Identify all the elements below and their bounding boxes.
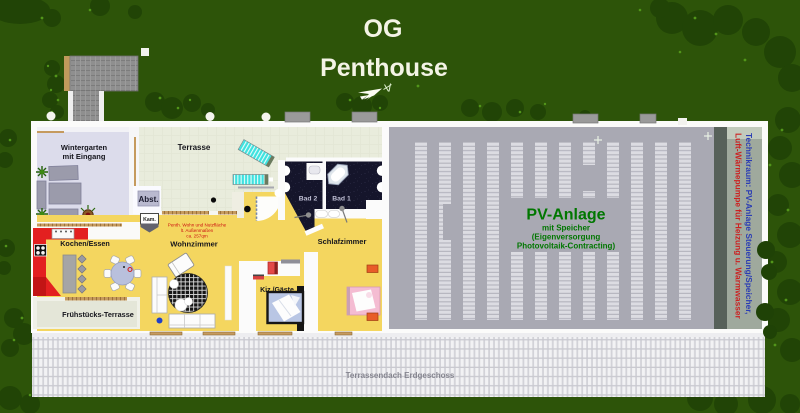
- svg-text:Schlafzimmer: Schlafzimmer: [318, 237, 367, 246]
- svg-text:Frühstücks-Terrasse: Frühstücks-Terrasse: [62, 310, 134, 319]
- svg-text:lt. Außenmaßen: lt. Außenmaßen: [181, 228, 214, 233]
- svg-text:Wintergarten: Wintergarten: [61, 143, 108, 152]
- svg-text:Kam.: Kam.: [143, 217, 156, 223]
- svg-text:(Eigenversorgung: (Eigenversorgung: [532, 233, 601, 242]
- svg-text:Penthouse: Penthouse: [320, 54, 448, 82]
- svg-text:PV-Anlage: PV-Anlage: [526, 207, 605, 224]
- svg-text:OG: OG: [364, 15, 403, 43]
- svg-text:Terrassendach Erdgeschoss: Terrassendach Erdgeschoss: [346, 371, 455, 380]
- svg-text:Photovoltaik-Contracting): Photovoltaik-Contracting): [517, 242, 616, 251]
- svg-text:Bad 1: Bad 1: [332, 196, 351, 203]
- svg-text:Terrasse: Terrasse: [178, 143, 211, 152]
- svg-text:Luft-Wärmepumpe für Heizung u.: Luft-Wärmepumpe für Heizung u. Warmwasse…: [734, 133, 744, 320]
- svg-text:Penth. Wohn und Nutzfläche: Penth. Wohn und Nutzfläche: [168, 223, 227, 228]
- svg-text:mit Speicher: mit Speicher: [542, 224, 590, 233]
- svg-text:Technikraum: PV-Anlage Steueru: Technikraum: PV-Anlage Steuerung/Speiche…: [744, 133, 754, 314]
- svg-text:Wohnzimmer: Wohnzimmer: [170, 240, 218, 249]
- svg-text:ca. 257qm: ca. 257qm: [186, 234, 208, 239]
- svg-text:Abst.: Abst.: [139, 195, 159, 204]
- svg-text:mit Eingang: mit Eingang: [63, 152, 106, 161]
- svg-text:Bad 2: Bad 2: [299, 196, 318, 203]
- svg-text:Kochen/Essen: Kochen/Essen: [60, 239, 110, 248]
